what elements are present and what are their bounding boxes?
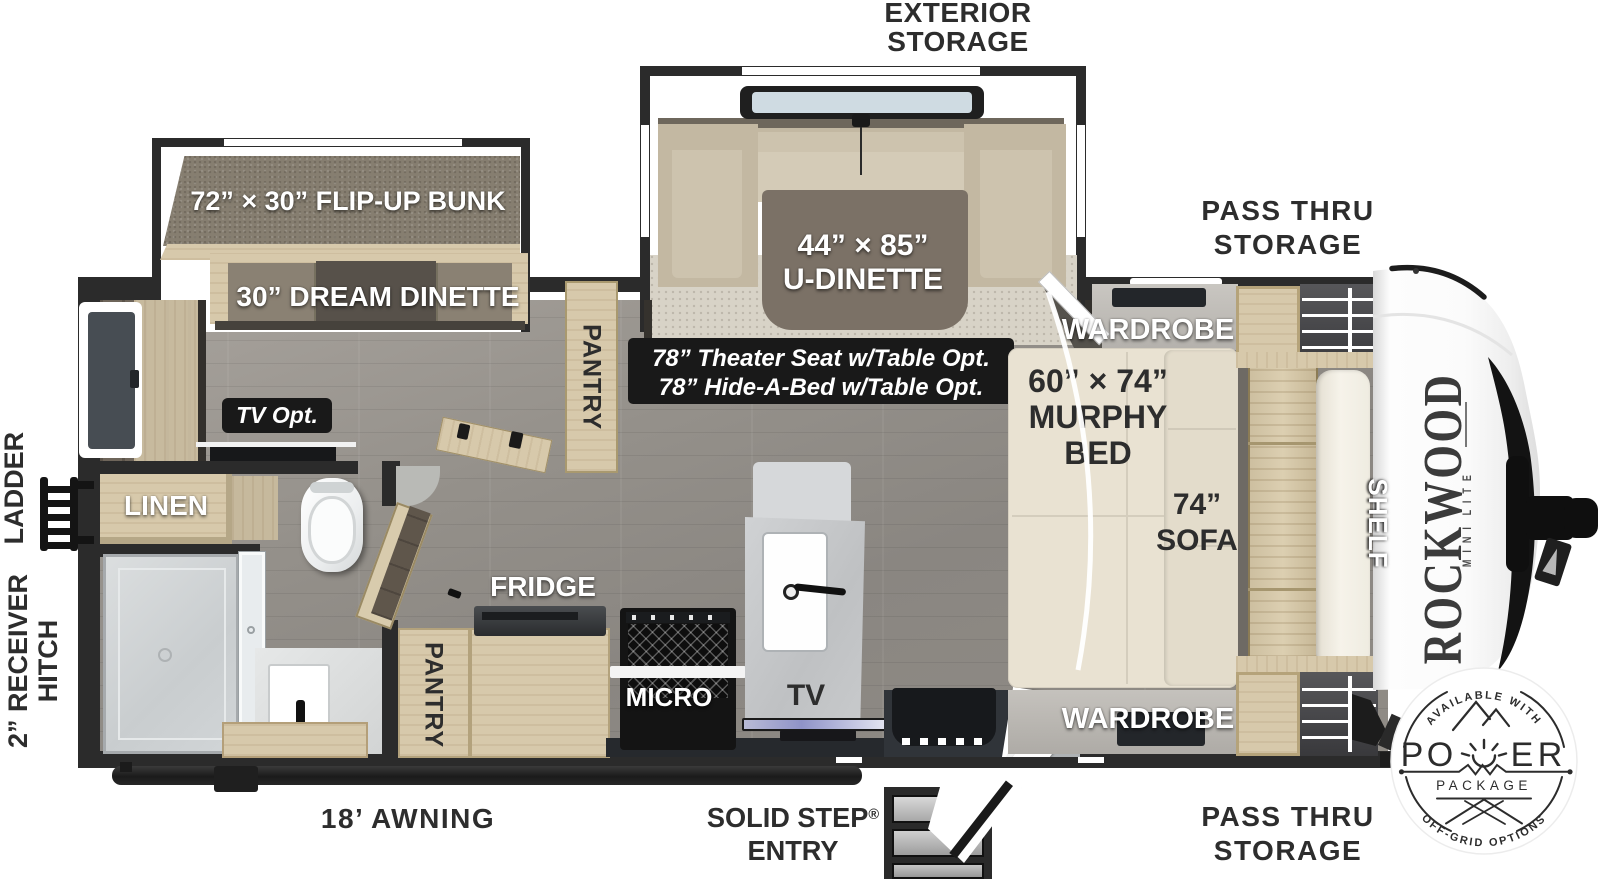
svg-text:O: O bbox=[1427, 736, 1453, 774]
svg-text:P: P bbox=[1401, 736, 1424, 774]
svg-text:PACKAGE: PACKAGE bbox=[1436, 778, 1532, 793]
svg-text:E: E bbox=[1511, 736, 1534, 774]
svg-text:R: R bbox=[1538, 736, 1563, 774]
